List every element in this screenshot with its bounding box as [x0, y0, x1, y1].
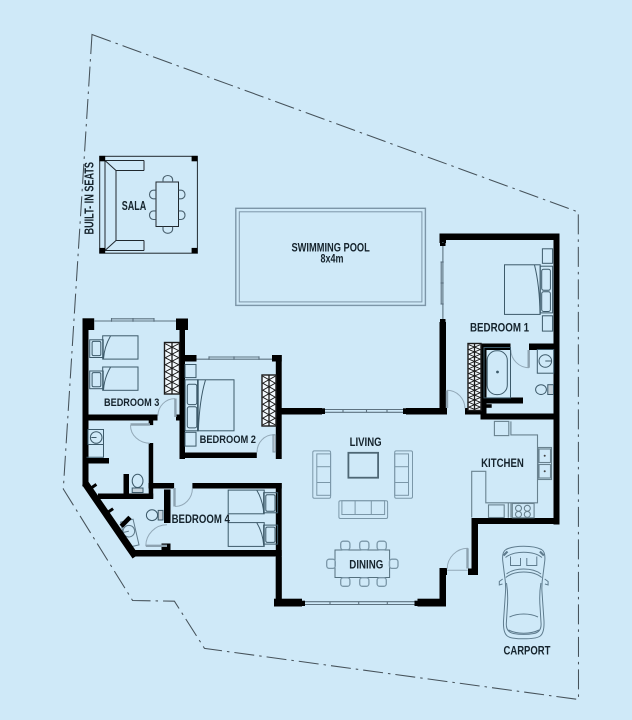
- svg-text:KITCHEN: KITCHEN: [481, 456, 524, 470]
- svg-text:CARPORT: CARPORT: [504, 643, 551, 657]
- svg-text:BUILT- IN SEATS: BUILT- IN SEATS: [83, 162, 97, 235]
- svg-text:BEDROOM 3: BEDROOM 3: [104, 397, 159, 409]
- svg-text:DINING: DINING: [349, 557, 383, 571]
- svg-text:SALA: SALA: [122, 198, 147, 213]
- svg-text:LIVING: LIVING: [350, 437, 382, 449]
- svg-text:8x4m: 8x4m: [321, 251, 344, 265]
- svg-text:BEDROOM 2: BEDROOM 2: [200, 434, 256, 446]
- svg-text:BEDROOM 1: BEDROOM 1: [470, 323, 530, 335]
- svg-text:BEDROOM 4: BEDROOM 4: [172, 514, 231, 526]
